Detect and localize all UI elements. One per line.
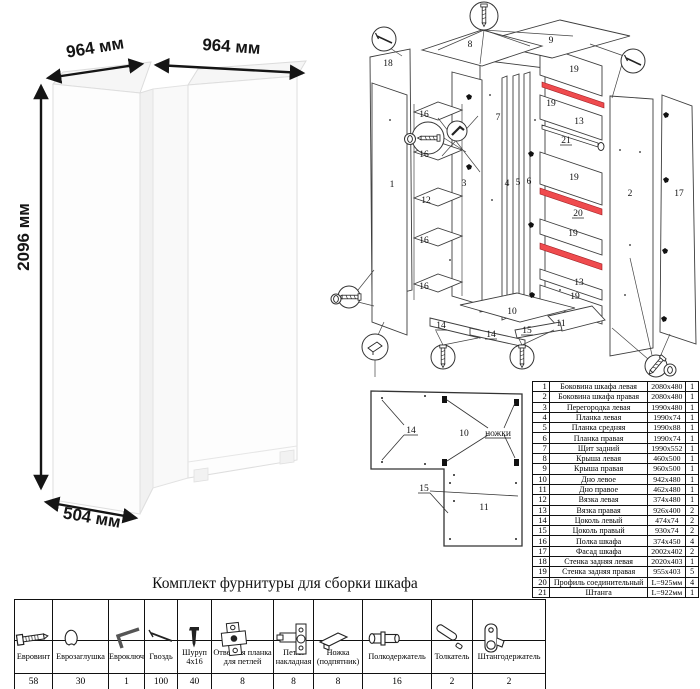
back-right-stack bbox=[540, 45, 604, 324]
hardware-kit-table: Евровинт Еврозаглушка Евроключ Гвоздь Шу… bbox=[14, 599, 546, 689]
part-num: 6 bbox=[533, 433, 550, 443]
table-row: 11Дно правое462x4801 bbox=[533, 484, 699, 494]
part-num: 11 bbox=[533, 484, 550, 494]
part-num: 16 bbox=[533, 536, 550, 546]
hardware-icons-row bbox=[15, 600, 546, 641]
part-label-3: 3 bbox=[462, 179, 467, 189]
hexkey-icon bbox=[109, 600, 145, 641]
hardware-qty: 2 bbox=[432, 674, 473, 689]
part-name: Цоколь правый bbox=[549, 526, 648, 536]
part-size: 1990x74 bbox=[648, 433, 686, 443]
table-row: 8Крыша левая460x5001 bbox=[533, 454, 699, 464]
part-num: 7 bbox=[533, 443, 550, 453]
panel-side-left-1 bbox=[372, 83, 407, 335]
plan-label-feet: ножки bbox=[485, 429, 511, 439]
part-label-11: 11 bbox=[556, 319, 565, 329]
part-qty: 1 bbox=[686, 557, 699, 567]
hardware-qty: 58 bbox=[15, 674, 53, 689]
part-name: Вязка правая bbox=[549, 505, 648, 515]
shelf-pin-icon bbox=[363, 600, 432, 641]
part-size: 1990x480 bbox=[648, 402, 686, 412]
part-num: 5 bbox=[533, 423, 550, 433]
part-size: 460x500 bbox=[648, 454, 686, 464]
part-label-16: 16 bbox=[419, 236, 429, 246]
part-size: L=922мм bbox=[648, 587, 686, 597]
part-num: 18 bbox=[533, 557, 550, 567]
part-size: 462x480 bbox=[648, 484, 686, 494]
panel-back-shield-7 bbox=[480, 60, 545, 312]
table-row: 4Планка левая1990x741 bbox=[533, 412, 699, 422]
table-row: 19Стенка задняя правая955x4035 bbox=[533, 567, 699, 577]
assembly-sheet: 964 мм 964 мм 2096 мм 504 мм bbox=[0, 0, 700, 689]
part-size: 2080x480 bbox=[648, 392, 686, 402]
part-name: Стенка задняя правая bbox=[549, 567, 648, 577]
part-qty: 4 bbox=[686, 577, 699, 587]
part-qty: 1 bbox=[686, 412, 699, 422]
table-row: 16Полка шкафа374x4504 bbox=[533, 536, 699, 546]
part-label-16: 16 bbox=[419, 150, 429, 160]
table-row: 1Боковина шкафа левая2080x4801 bbox=[533, 382, 699, 392]
table-row: 12Вязка левая374x4801 bbox=[533, 495, 699, 505]
part-num: 9 bbox=[533, 464, 550, 474]
part-qty: 1 bbox=[686, 443, 699, 453]
hardware-qty: 1 bbox=[109, 674, 145, 689]
part-qty: 4 bbox=[686, 536, 699, 546]
part-label-21: 21 bbox=[561, 136, 571, 146]
part-num: 14 bbox=[533, 515, 550, 525]
part-qty: 1 bbox=[686, 392, 699, 402]
foot-icon bbox=[314, 600, 363, 641]
part-size: 942x480 bbox=[648, 474, 686, 484]
table-row: 5Планка средняя1990x881 bbox=[533, 423, 699, 433]
hardware-qty: 8 bbox=[314, 674, 363, 689]
part-qty: 2 bbox=[686, 515, 699, 525]
part-name: Боковина шкафа правая bbox=[549, 392, 648, 402]
table-row: 6Планка правая1990x741 bbox=[533, 433, 699, 443]
part-label-10: 10 bbox=[507, 307, 517, 317]
part-name: Дно правое bbox=[549, 484, 648, 494]
part-name: Боковина шкафа левая bbox=[549, 382, 648, 392]
table-row: 14Цоколь левый474x742 bbox=[533, 515, 699, 525]
part-name: Дно левое bbox=[549, 474, 648, 484]
part-num: 15 bbox=[533, 526, 550, 536]
plan-dots bbox=[381, 395, 517, 540]
table-row: 20Профиль соединительныйL=925мм4 bbox=[533, 577, 699, 587]
plan-view: 14 10 ножки 15 11 bbox=[368, 383, 540, 551]
part-qty: 1 bbox=[686, 423, 699, 433]
hardware-qty: 40 bbox=[178, 674, 212, 689]
table-row: 9Крыша правая960x5001 bbox=[533, 464, 699, 474]
part-label-16: 16 bbox=[419, 110, 429, 120]
plan-outline bbox=[371, 391, 522, 546]
part-name: Стенка задняя левая bbox=[549, 557, 648, 567]
part-label-8: 8 bbox=[468, 40, 473, 50]
hardware-qty: 2 bbox=[473, 674, 546, 689]
exploded-diagram: 18 8 9 19 16 16 1 3 7 4 5 6 19 13 21 19 … bbox=[330, 0, 700, 385]
part-qty: 1 bbox=[686, 474, 699, 484]
part-label-9: 9 bbox=[549, 36, 554, 46]
hardware-qty: 30 bbox=[53, 674, 109, 689]
facade-17 bbox=[660, 95, 696, 344]
part-qty: 1 bbox=[686, 382, 699, 392]
part-size: 2002x402 bbox=[648, 546, 686, 556]
wardrobe-body bbox=[53, 61, 306, 514]
panel-partition-3 bbox=[452, 72, 482, 305]
wardrobe-3d-view: 964 мм 964 мм 2096 мм 504 мм bbox=[0, 0, 330, 576]
table-row: 2Боковина шкафа правая2080x4801 bbox=[533, 392, 699, 402]
plan-label-15: 15 bbox=[419, 484, 429, 494]
dim-width-right: 964 мм bbox=[202, 35, 261, 58]
part-label-19: 19 bbox=[546, 99, 556, 109]
part-name: Планка средняя bbox=[549, 423, 648, 433]
part-label-7: 7 bbox=[496, 113, 501, 123]
part-name: Полка шкафа bbox=[549, 536, 648, 546]
part-qty: 2 bbox=[686, 546, 699, 556]
rod-holder-icon bbox=[473, 600, 546, 641]
part-qty: 2 bbox=[686, 526, 699, 536]
part-label-4: 4 bbox=[505, 179, 510, 189]
part-size: L=925мм bbox=[648, 577, 686, 587]
part-num: 10 bbox=[533, 474, 550, 484]
hardware-qty-row: 58 30 1 100 40 8 8 8 16 2 2 bbox=[15, 674, 546, 689]
part-label-14: 14 bbox=[436, 321, 446, 331]
plan-lines bbox=[382, 400, 518, 513]
hardware-qty: 16 bbox=[363, 674, 432, 689]
plan-label-11: 11 bbox=[479, 503, 488, 513]
nail-icon bbox=[145, 600, 178, 641]
part-qty: 1 bbox=[686, 484, 699, 494]
part-label-16: 16 bbox=[419, 282, 429, 292]
part-name: Цоколь левый bbox=[549, 515, 648, 525]
hardware-qty: 8 bbox=[274, 674, 314, 689]
part-num: 2 bbox=[533, 392, 550, 402]
part-num: 3 bbox=[533, 402, 550, 412]
part-num: 4 bbox=[533, 412, 550, 422]
part-label-13: 13 bbox=[574, 117, 584, 127]
part-num: 1 bbox=[533, 382, 550, 392]
part-name: Фасад шкафа bbox=[549, 546, 648, 556]
part-size: 960x500 bbox=[648, 464, 686, 474]
part-size: 2080x480 bbox=[648, 382, 686, 392]
hinge-icon bbox=[274, 600, 314, 641]
table-row: 3Перегородка левая1990x4801 bbox=[533, 402, 699, 412]
table-row: 17Фасад шкафа2002x4022 bbox=[533, 546, 699, 556]
part-size: 1990x88 bbox=[648, 423, 686, 433]
part-size: 1990x552 bbox=[648, 443, 686, 453]
panel-side-right-2 bbox=[610, 96, 653, 356]
pusher-icon bbox=[432, 600, 473, 641]
plan-label-14: 14 bbox=[406, 426, 416, 436]
part-label-1: 1 bbox=[390, 180, 395, 190]
part-qty: 1 bbox=[686, 495, 699, 505]
parts-list-table: 1Боковина шкафа левая2080x4801 2Боковина… bbox=[532, 381, 699, 598]
part-name: Планка левая bbox=[549, 412, 648, 422]
eurocap-icon bbox=[53, 600, 109, 641]
plan-label-10: 10 bbox=[459, 429, 469, 439]
part-label-18: 18 bbox=[383, 59, 393, 69]
hardware-qty: 100 bbox=[145, 674, 178, 689]
part-label-2: 2 bbox=[628, 189, 633, 199]
table-row: 7Щит задний1990x5521 bbox=[533, 443, 699, 453]
part-qty: 1 bbox=[686, 587, 699, 597]
part-name: Щит задний bbox=[549, 443, 648, 453]
dim-width-left: 964 мм bbox=[65, 33, 126, 61]
hardware-qty: 8 bbox=[212, 674, 274, 689]
part-size: 374x450 bbox=[648, 536, 686, 546]
part-size: 926x400 bbox=[648, 505, 686, 515]
part-label-20: 20 bbox=[573, 209, 583, 219]
part-label-13: 13 bbox=[574, 278, 584, 288]
part-size: 1990x74 bbox=[648, 412, 686, 422]
dim-height: 2096 мм bbox=[14, 203, 33, 271]
table-row: 21ШтангаL=922мм1 bbox=[533, 587, 699, 597]
part-name: Перегородка левая bbox=[549, 402, 648, 412]
strips-4-5-6 bbox=[502, 72, 530, 320]
part-label-19: 19 bbox=[569, 173, 579, 183]
part-label-15: 15 bbox=[522, 326, 532, 336]
table-row: 18Стенка задняя левая2020x4031 bbox=[533, 557, 699, 567]
screw-icon bbox=[178, 600, 212, 641]
part-num: 17 bbox=[533, 546, 550, 556]
part-name: Планка правая bbox=[549, 433, 648, 443]
part-qty: 2 bbox=[686, 505, 699, 515]
part-label-19: 19 bbox=[569, 65, 579, 75]
part-name: Штанга bbox=[549, 587, 648, 597]
euroscrew-icon bbox=[15, 600, 53, 641]
part-qty: 5 bbox=[686, 567, 699, 577]
part-size: 374x480 bbox=[648, 495, 686, 505]
part-label-5: 5 bbox=[516, 178, 521, 188]
part-qty: 1 bbox=[686, 464, 699, 474]
part-size: 2020x403 bbox=[648, 557, 686, 567]
table-row: 10Дно левое942x4801 bbox=[533, 474, 699, 484]
part-name: Крыша правая bbox=[549, 464, 648, 474]
part-qty: 1 bbox=[686, 433, 699, 443]
part-qty: 1 bbox=[686, 454, 699, 464]
part-size: 955x403 bbox=[648, 567, 686, 577]
part-label-12: 12 bbox=[421, 196, 431, 206]
part-qty: 1 bbox=[686, 402, 699, 412]
part-name: Крыша левая bbox=[549, 454, 648, 464]
part-size: 474x74 bbox=[648, 515, 686, 525]
part-label-19: 19 bbox=[570, 292, 580, 302]
part-num: 8 bbox=[533, 454, 550, 464]
part-name: Профиль соединительный bbox=[549, 577, 648, 587]
table-row: 15Цоколь правый930x742 bbox=[533, 526, 699, 536]
hinge-plate-icon bbox=[212, 600, 274, 641]
part-name: Вязка левая bbox=[549, 495, 648, 505]
part-label-14: 14 bbox=[486, 330, 496, 340]
part-num: 12 bbox=[533, 495, 550, 505]
part-size: 930x74 bbox=[648, 526, 686, 536]
part-label-17: 17 bbox=[674, 189, 684, 199]
part-num: 13 bbox=[533, 505, 550, 515]
hardware-kit-title: Комплект фурнитуры для сборки шкафа bbox=[20, 575, 550, 593]
table-row: 13Вязка правая926x4002 bbox=[533, 505, 699, 515]
part-label-6: 6 bbox=[527, 177, 532, 187]
part-label-19: 19 bbox=[568, 229, 578, 239]
